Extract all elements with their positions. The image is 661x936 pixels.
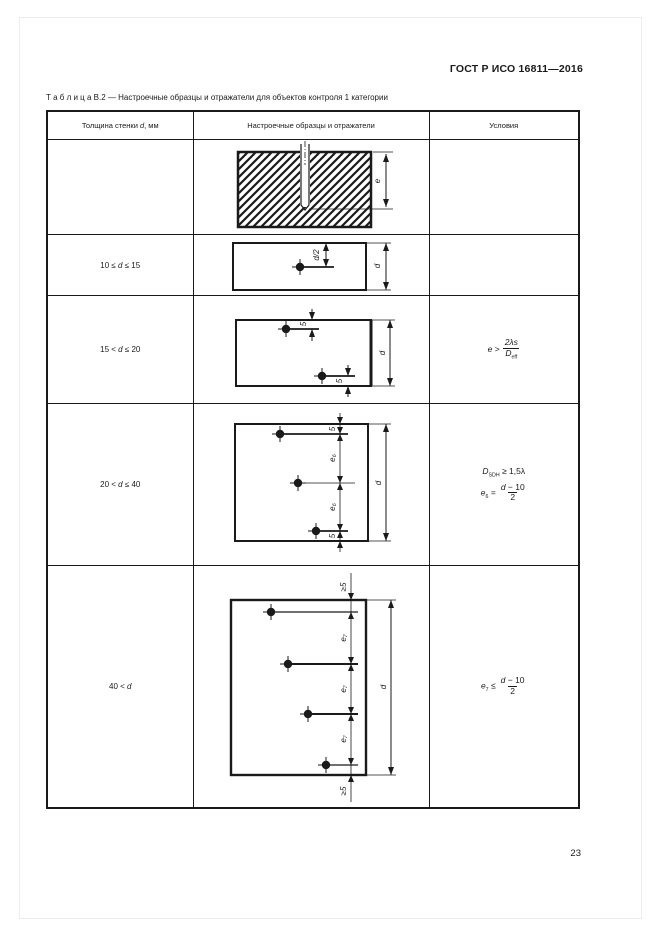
condition-formula: e6 =d − 102 (430, 483, 579, 504)
table-caption-label: Т а б л и ц а В.2 (46, 93, 106, 102)
thickness-post: ≤ 40 (123, 480, 141, 489)
document-page: ГОСТ Р ИСО 16811—2016 Т а б л и ц а В.2 … (0, 0, 661, 936)
diagram-two-holes: 5 5 d (195, 297, 427, 402)
fraction-numerator-rest: − 10 (506, 482, 525, 492)
condition-formula: DSDH ≥ 1,5λ (430, 466, 579, 479)
thickness-pre: 20 < (100, 480, 118, 489)
dim-label-gap1: e₇ (339, 633, 348, 641)
fraction-numerator: 2λs (505, 337, 518, 347)
diagram-cell-row3: 5 5 d (193, 296, 429, 404)
fraction: d − 102 (499, 676, 527, 697)
dim-label-half-depth: d/2 (312, 249, 321, 261)
thickness-pre: 40 < (109, 682, 127, 691)
thickness-cell-row5: 40 < d (47, 566, 193, 809)
dim-label-notch-depth: e (373, 178, 382, 183)
dim-label-thickness: d (378, 350, 387, 355)
condition-cell-row1 (429, 140, 579, 235)
diagram-cell-row1: e (193, 140, 429, 235)
thickness-var: d (127, 682, 131, 691)
table-row: 10 ≤ d ≤ 15 (47, 235, 579, 296)
diagram-four-holes: ≥5 e₇ e₇ e₇ ≥5 d (195, 567, 427, 806)
dim-label-gap2: e₆ (328, 502, 337, 510)
fraction-denominator-sub: eff (511, 355, 517, 361)
thickness-cell-row4: 20 < d ≤ 40 (47, 404, 193, 566)
fraction-denominator: 2 (508, 492, 517, 503)
condition-cell-row4: DSDH ≥ 1,5λ e6 =d − 102 (429, 404, 579, 566)
formula-operator: ≤ (491, 681, 496, 691)
diagram-cell-row5: ≥5 e₇ e₇ e₇ ≥5 d (193, 566, 429, 809)
thickness-pre: 15 < (100, 345, 118, 354)
condition-cell-row5: e7 ≤d − 102 (429, 566, 579, 809)
col1-label-post: , мм (144, 121, 158, 130)
document-header: ГОСТ Р ИСО 16811—2016 (450, 63, 583, 75)
condition-formula: e >2λsDeff (488, 344, 520, 354)
dim-label-thickness: d (373, 263, 382, 268)
thickness-cell-row1 (47, 140, 193, 235)
condition-formula: e7 ≤d − 102 (430, 676, 579, 697)
table-row: e (47, 140, 579, 235)
table-row: 20 < d ≤ 40 (47, 404, 579, 566)
formula-operator: = (491, 487, 496, 497)
diagram-cell-row4: 5 e₆ e₆ 5 d (193, 404, 429, 566)
fraction-numerator-rest: − 10 (505, 675, 524, 685)
diagram-notched-block: e (195, 141, 427, 233)
formula-lhs-sub: 6 (486, 494, 489, 500)
column-header-samples: Настроечные образцы и отражатели (193, 111, 429, 140)
table-caption-text: — Настроечные образцы и отражатели для о… (108, 93, 388, 102)
dim-label-edge-bottom: 5 (328, 533, 337, 538)
thickness-post: ≤ 15 (122, 261, 140, 270)
diagram-one-hole: d/2 d (195, 236, 427, 294)
hatched-block (238, 141, 371, 227)
dimension-lines (271, 593, 396, 782)
formula-lhs: e (488, 344, 493, 354)
condition-cell-row3: e >2λsDeff (429, 296, 579, 404)
thickness-pre: 10 ≤ (100, 261, 118, 270)
thickness-post: ≤ 20 (123, 345, 141, 354)
dim-label-edge-top: ≥5 (339, 582, 348, 591)
fraction: 2λsDeff (503, 338, 520, 361)
thickness-cell-row2: 10 ≤ d ≤ 15 (47, 235, 193, 296)
dim-label-edge-top: 5 (328, 426, 337, 431)
dim-label-gap1: e₆ (328, 453, 337, 461)
table-header-row: Толщина стенки d, мм Настроечные образцы… (47, 111, 579, 140)
dim-label-edge-bottom: ≥5 (339, 786, 348, 795)
table-caption: Т а б л и ц а В.2 — Настроечные образцы … (46, 93, 586, 102)
column-header-conditions: Условия (429, 111, 579, 140)
dim-label-thickness: d (374, 480, 383, 485)
table-row: 40 < d (47, 566, 579, 809)
formula-operator: > (495, 344, 500, 354)
fraction: d − 102 (499, 483, 527, 504)
table-b2: Толщина стенки d, мм Настроечные образцы… (46, 110, 580, 809)
page-number: 23 (570, 848, 581, 859)
diagram-three-holes: 5 e₆ e₆ 5 d (195, 405, 427, 564)
condition-cell-row2 (429, 235, 579, 296)
formula-rest: ≥ 1,5λ (500, 466, 525, 476)
formula-var-sub: SDH (489, 473, 500, 479)
column-header-thickness: Толщина стенки d, мм (47, 111, 193, 140)
dim-label-gap2: e₇ (339, 684, 348, 692)
dim-label-thickness: d (379, 684, 388, 689)
dim-label-bottom-offset: 5 (335, 378, 344, 383)
table-row: 15 < d ≤ 20 (47, 296, 579, 404)
formula-lhs-sub: 7 (486, 687, 489, 693)
thickness-cell-row3: 15 < d ≤ 20 (47, 296, 193, 404)
diagram-cell-row2: d/2 d (193, 235, 429, 296)
fraction-denominator: 2 (508, 686, 517, 697)
dim-label-top-offset: 5 (299, 321, 308, 326)
dim-label-gap3: e₇ (339, 734, 348, 742)
col1-label-pre: Толщина стенки (82, 121, 140, 130)
